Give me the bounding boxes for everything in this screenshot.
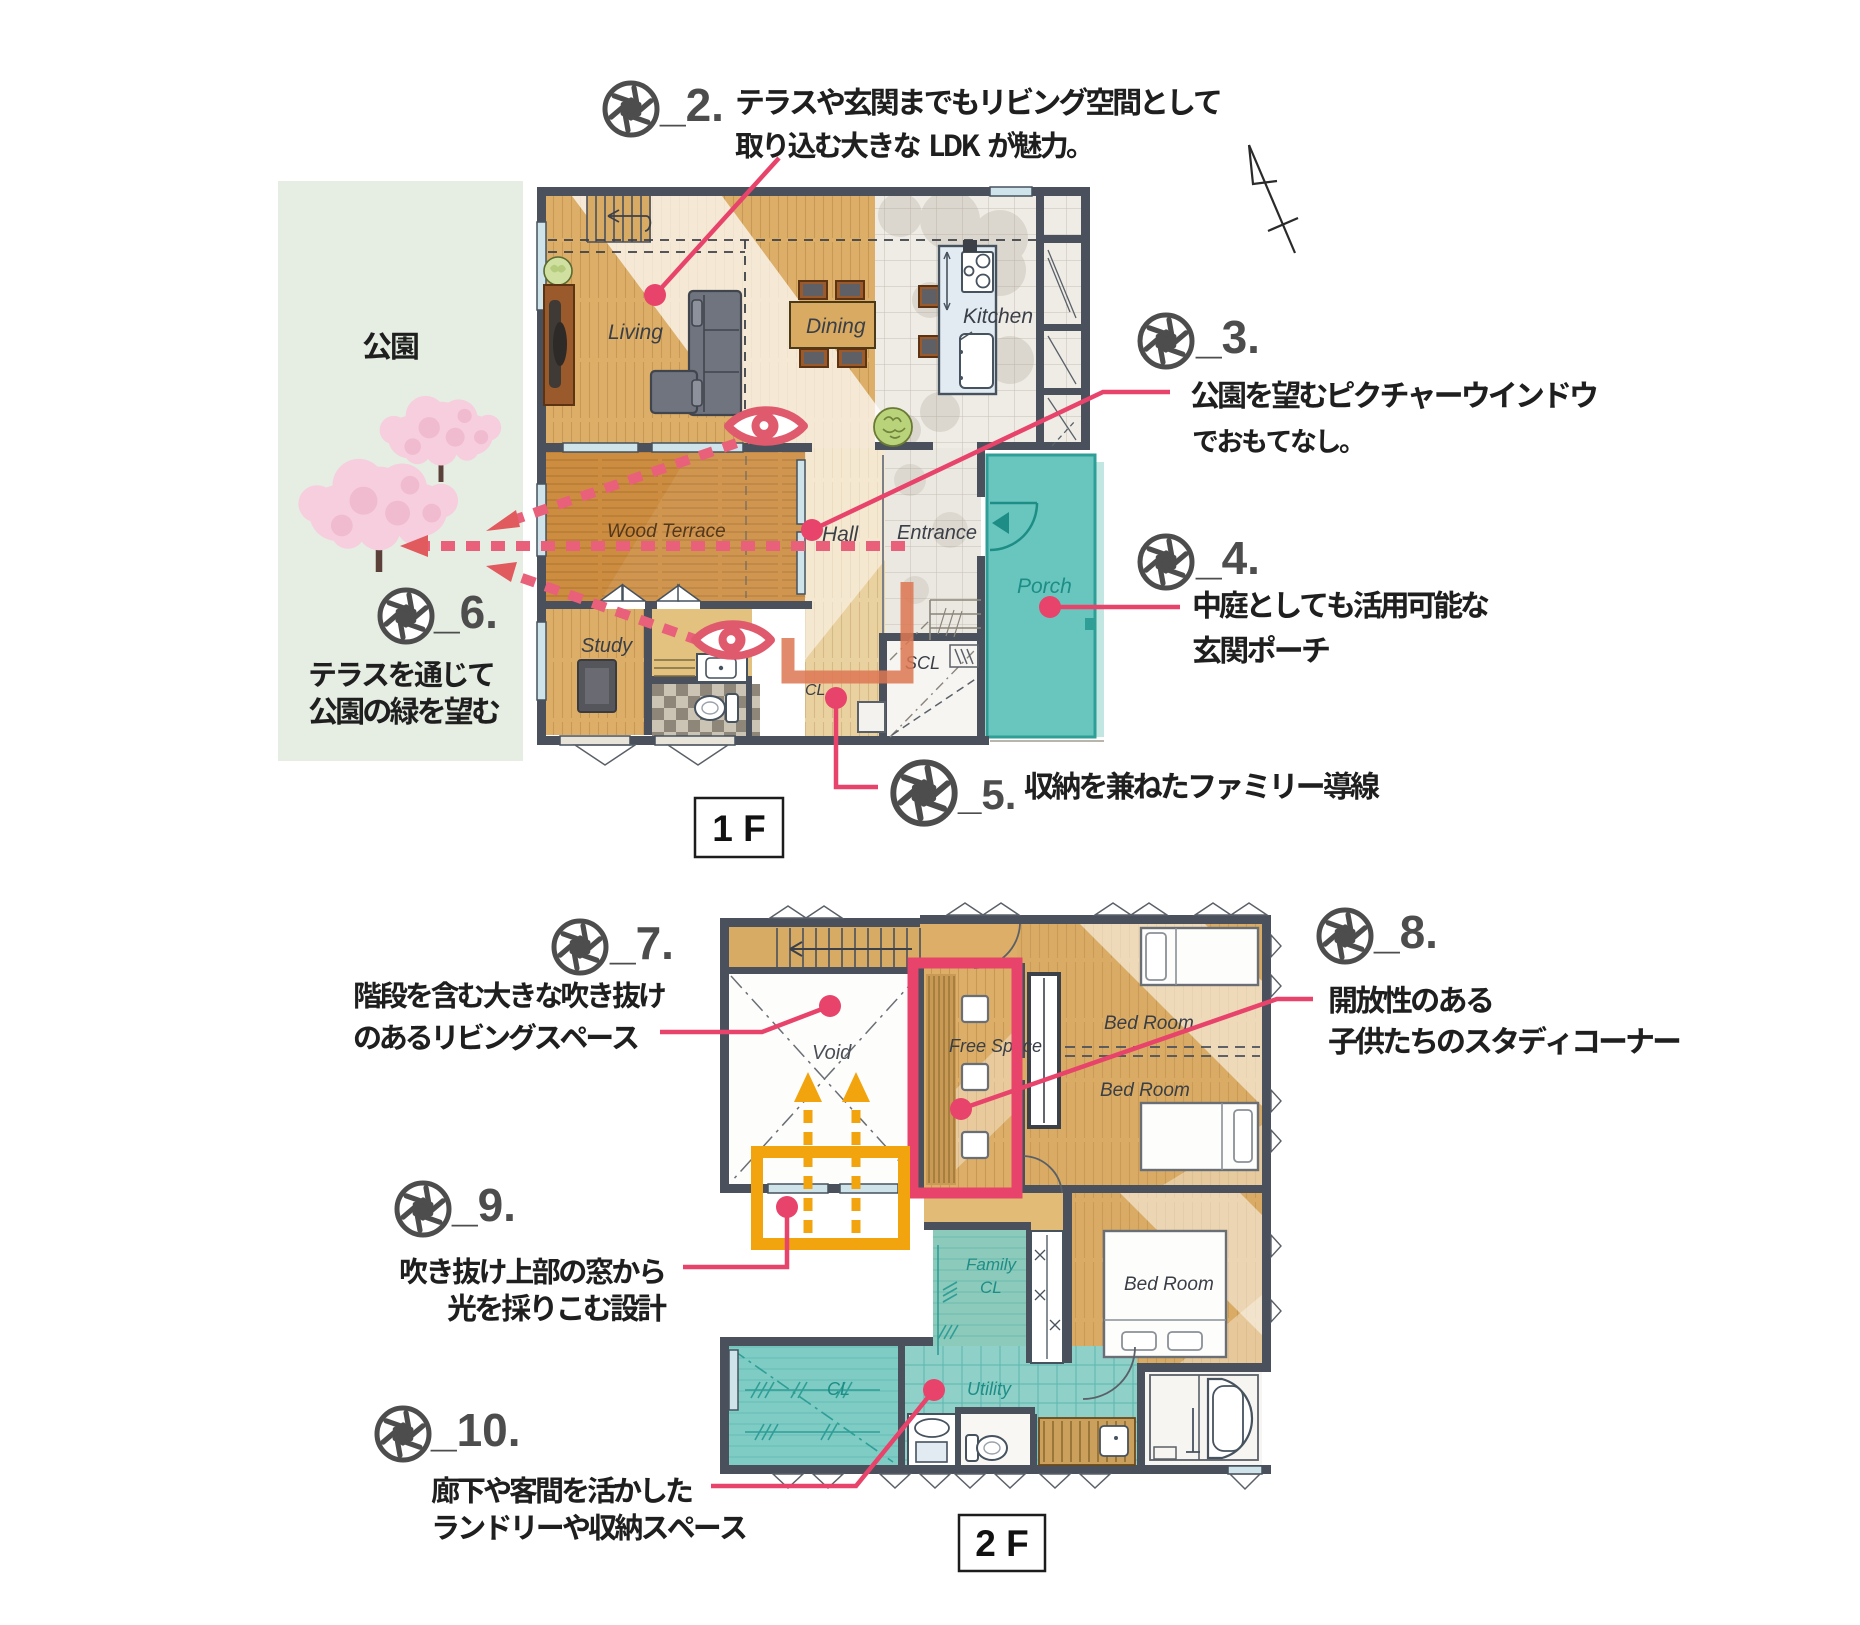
svg-text:CL: CL [805,682,825,699]
svg-text:CL: CL [980,1278,1002,1297]
svg-text:Kitchen: Kitchen [963,305,1033,328]
svg-text:_10.: _10. [430,1404,521,1456]
svg-text:Wood Terrace: Wood Terrace [607,521,726,542]
svg-text:2 F: 2 F [975,1523,1028,1564]
svg-text:Living: Living [608,321,663,344]
svg-text:_5.: _5. [957,771,1016,818]
svg-text:_3.: _3. [1195,311,1260,363]
svg-text:Study: Study [581,635,633,657]
svg-text:Utility: Utility [967,1379,1012,1399]
svg-text:Porch: Porch [1017,575,1072,598]
svg-text:_8.: _8. [1373,906,1438,958]
svg-text:Bed Room: Bed Room [1124,1274,1214,1295]
svg-text:Void: Void [812,1042,852,1064]
svg-text:Family: Family [966,1255,1018,1274]
svg-text:_7.: _7. [609,917,674,969]
svg-text:_9.: _9. [451,1179,516,1231]
svg-text:Free Space: Free Space [949,1036,1042,1056]
svg-text:1 F: 1 F [712,808,765,849]
svg-text:_6.: _6. [433,586,498,638]
svg-text:Entrance: Entrance [897,522,977,544]
svg-text:CL: CL [827,1379,850,1399]
svg-text:_4.: _4. [1195,532,1260,584]
svg-text:_2.: _2. [659,79,724,131]
svg-text:Bed Room: Bed Room [1100,1080,1190,1101]
svg-text:Dining: Dining [806,315,866,338]
